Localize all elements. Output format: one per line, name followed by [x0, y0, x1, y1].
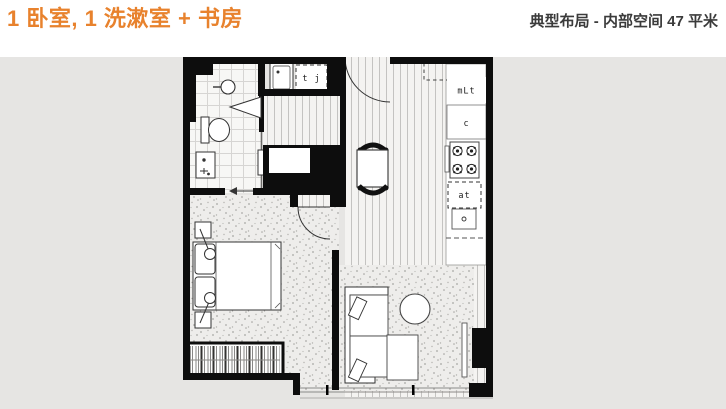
- chaise-cushion: [387, 335, 418, 380]
- study: [258, 145, 340, 195]
- desk-top: [269, 148, 310, 173]
- stove-handle: [445, 146, 449, 172]
- window-mullion: [326, 385, 329, 395]
- laundry: t j: [270, 63, 327, 92]
- kitchen-sink-icon: [452, 209, 476, 229]
- window-mullion: [412, 385, 415, 395]
- kitchen-shelf: [462, 323, 467, 377]
- kitchen-box-low-label: at: [458, 191, 470, 201]
- coffee-table: [400, 294, 430, 324]
- floorplan-panel: mLt c at: [0, 57, 726, 409]
- kitchen-box-top-label: mLt: [457, 87, 475, 97]
- lamp-icon: [205, 293, 216, 304]
- laundry-box-label: t j: [302, 74, 320, 84]
- bathroom-sink-icon: [196, 152, 215, 178]
- page-subtitle: 典型布局 - 内部空间 47 平米: [530, 10, 718, 31]
- page-title: 1 卧室, 1 洗漱室 + 书房: [7, 1, 243, 33]
- lamp-icon: [205, 249, 216, 260]
- kitchen-box-mid-label: c: [463, 119, 469, 129]
- bedroom: [186, 222, 283, 377]
- wardrobe: [186, 343, 283, 377]
- toilet-icon: [201, 117, 230, 143]
- dining-table: [357, 150, 388, 187]
- stove-icon: [450, 142, 479, 178]
- floorplan-svg: mLt c at: [183, 57, 493, 400]
- laundry-sink-icon: [270, 63, 293, 92]
